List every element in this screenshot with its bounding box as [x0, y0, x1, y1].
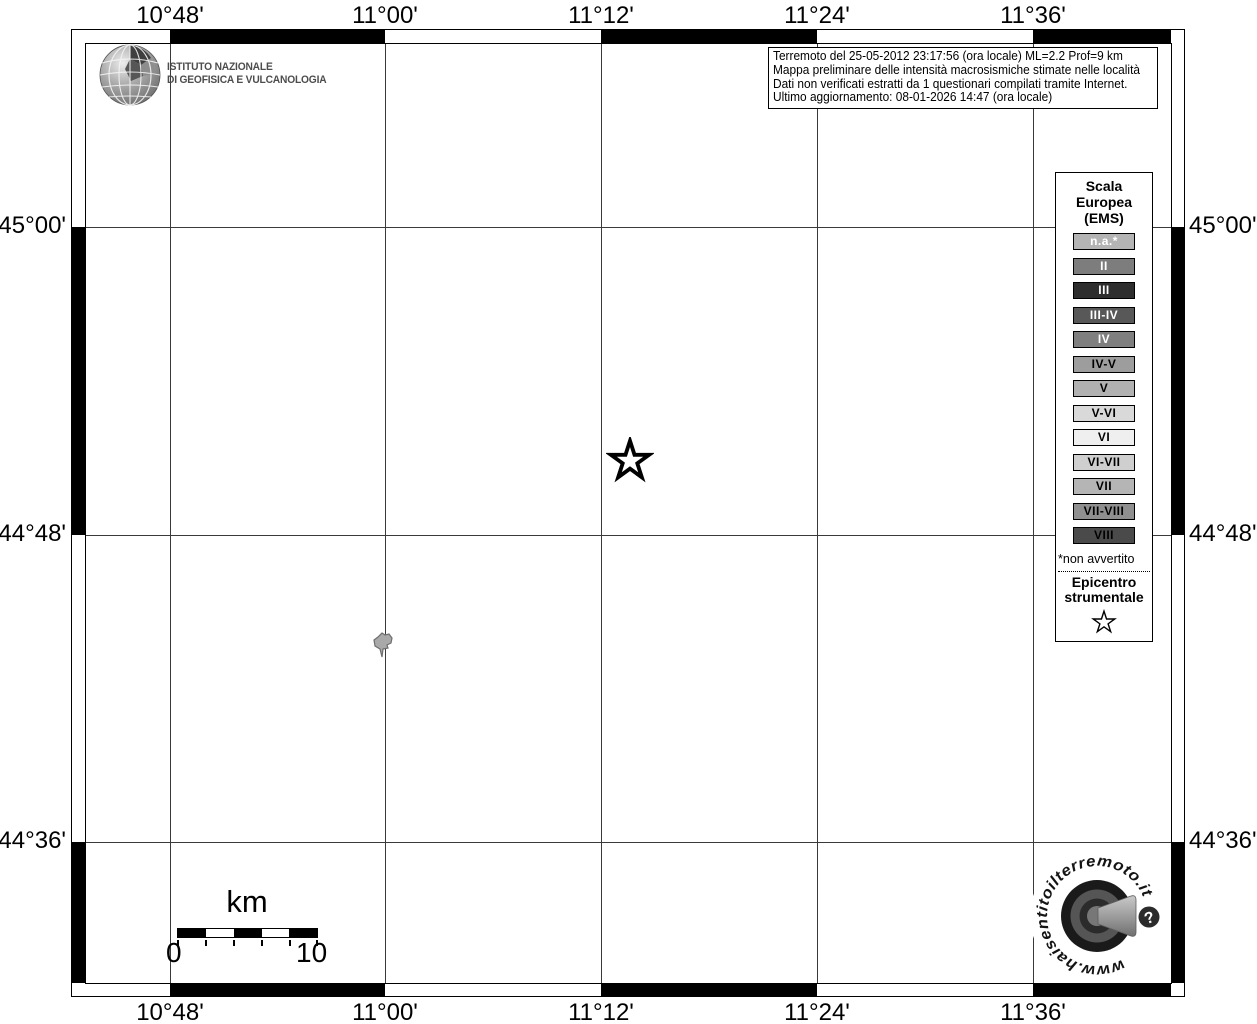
scalebar-tick	[233, 940, 235, 946]
scalebar-end-label: 10	[296, 937, 327, 969]
legend-intensity-items: n.a.*IIIIIIII-IVIVIV-VVV-VIVIVI-VIIVIIVI…	[1056, 233, 1152, 544]
legend-item-V: V	[1073, 380, 1135, 397]
legend-divider	[1058, 571, 1150, 572]
axis-label-left: 44°48'	[0, 519, 66, 549]
frame-band-segment	[1033, 30, 1171, 43]
frame-band-segment	[170, 983, 385, 996]
axis-label-top: 11°36'	[968, 1, 1098, 31]
legend-item-VII-VIII: VII-VIII	[1073, 503, 1135, 520]
scalebar-segment	[178, 929, 206, 937]
axis-label-top: 11°24'	[752, 1, 882, 31]
frame-band-segment	[601, 30, 817, 43]
frame-band-segment	[72, 842, 85, 983]
epicenter-star-icon	[606, 437, 654, 485]
scalebar-segment	[289, 929, 317, 937]
legend-item-n.a.*: n.a.*	[1073, 233, 1135, 250]
legend-epicenter-line2: strumentale	[1056, 590, 1152, 606]
ems-scale-legend: Scala Europea (EMS) n.a.*IIIIIIII-IVIVIV…	[1055, 172, 1153, 642]
legend-title-line3: (EMS)	[1056, 210, 1152, 226]
scalebar-tick	[289, 940, 291, 946]
frame-band-segment	[601, 983, 817, 996]
legend-item-VIII: VIII	[1073, 527, 1135, 544]
scalebar-unit-label: km	[207, 884, 287, 920]
legend-item-VII: VII	[1073, 478, 1135, 495]
legend-title-line1: Scala	[1056, 178, 1152, 194]
info-line-event: Terremoto del 25-05-2012 23:17:56 (ora l…	[773, 50, 1134, 64]
axis-label-right: 44°48'	[1189, 519, 1257, 549]
legend-title-line2: Europea	[1056, 194, 1152, 210]
axis-label-left: 44°36'	[0, 826, 66, 856]
ingv-name-line1: ISTITUTO NAZIONALE	[167, 61, 326, 74]
ingv-macroseismic-map: 10°48'11°00'11°12'11°24'11°36'10°48'11°0…	[0, 0, 1257, 1024]
legend-item-IV-V: IV-V	[1073, 356, 1135, 373]
legend-item-III: III	[1073, 282, 1135, 299]
legend-item-IV: IV	[1073, 331, 1135, 348]
haisentitoilterremoto-logo: ? www.haisentitoilterremoto.it	[1027, 846, 1167, 986]
axis-label-right: 45°00'	[1189, 211, 1257, 241]
axis-label-bottom: 11°12'	[536, 998, 666, 1024]
frame-band-segment	[170, 30, 385, 43]
info-line-updated: Ultimo aggiornamento: 08-01-2026 14:47 (…	[773, 91, 1134, 105]
legend-epicenter-star-icon	[1090, 609, 1118, 636]
axis-label-bottom: 11°24'	[752, 998, 882, 1024]
axis-label-right: 44°36'	[1189, 826, 1257, 856]
frame-band-segment	[1171, 227, 1184, 535]
axis-label-top: 10°48'	[105, 1, 235, 31]
earthquake-info-box: Terremoto del 25-05-2012 23:17:56 (ora l…	[768, 47, 1158, 109]
axis-label-top: 11°12'	[536, 1, 666, 31]
scalebar-tick	[205, 940, 207, 946]
axis-label-bottom: 10°48'	[105, 998, 235, 1024]
locality-polygon	[368, 630, 398, 664]
ingv-globe-logo	[97, 43, 163, 107]
legend-item-III-IV: III-IV	[1073, 307, 1135, 324]
map-frame-inner	[85, 43, 1172, 984]
legend-footnote: *non avvertito	[1058, 552, 1152, 566]
scalebar-segment	[234, 929, 262, 937]
ingv-name: ISTITUTO NAZIONALE DI GEOFISICA E VULCAN…	[167, 61, 326, 87]
axis-label-top: 11°00'	[320, 1, 450, 31]
legend-item-II: II	[1073, 258, 1135, 275]
frame-band-segment	[1171, 842, 1184, 983]
axis-label-bottom: 11°00'	[320, 998, 450, 1024]
axis-label-bottom: 11°36'	[968, 998, 1098, 1024]
axis-label-left: 45°00'	[0, 211, 66, 241]
info-line-questionnaires: Dati non verificati estratti da 1 questi…	[773, 78, 1134, 92]
legend-item-V-VI: V-VI	[1073, 405, 1135, 422]
legend-item-VI: VI	[1073, 429, 1135, 446]
legend-epicenter-line1: Epicentro	[1056, 575, 1152, 591]
info-line-map-type: Mappa preliminare delle intensità macros…	[773, 64, 1134, 78]
frame-band-segment	[72, 227, 85, 535]
scalebar-tick	[261, 940, 263, 946]
scalebar-start-label: 0	[166, 937, 182, 969]
ingv-name-line2: DI GEOFISICA E VULCANOLOGIA	[167, 74, 326, 87]
legend-item-VI-VII: VI-VII	[1073, 454, 1135, 471]
